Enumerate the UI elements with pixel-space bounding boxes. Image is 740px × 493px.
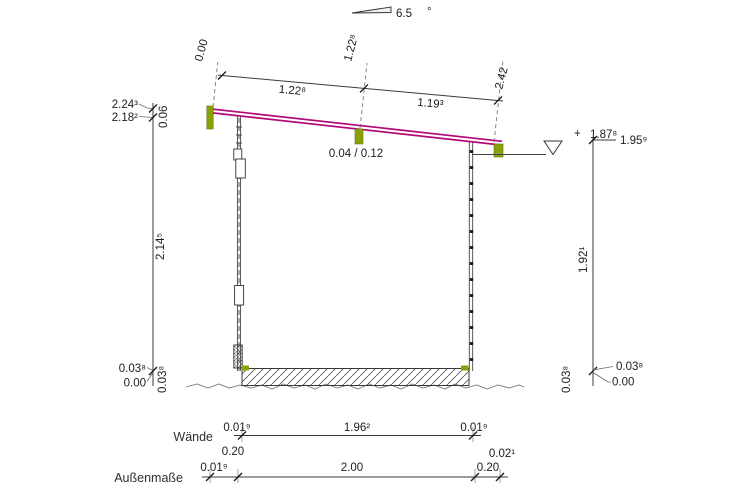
floor-slab bbox=[242, 369, 469, 386]
left-ground-level: 0.00 bbox=[124, 378, 146, 390]
left-wall bbox=[234, 117, 249, 372]
slope-wedge-icon bbox=[352, 7, 391, 13]
right-wall bbox=[461, 142, 473, 372]
door-handle-detail bbox=[236, 159, 246, 178]
right-sill-wood bbox=[461, 366, 469, 371]
right-wall-height: 1.92¹ bbox=[578, 247, 590, 273]
wall-connector-detail bbox=[235, 286, 244, 306]
outer-right: 0.20 bbox=[477, 462, 499, 474]
outer-left: 0.01⁹ bbox=[200, 462, 227, 474]
walls-dimension-row: Wände 0.01⁹ 1.96² 0.01⁹ 0.20 0.02¹ bbox=[173, 422, 515, 460]
left-dimensions: 2.24³ 2.18² 0.06 2.14⁵ 0.03⁸ 0.00 0.03⁸ bbox=[112, 99, 170, 393]
outer-row-label: Außenmaße bbox=[114, 471, 183, 485]
walls-row-label: Wände bbox=[173, 430, 213, 444]
right-dimensions: 1.95⁹ 1.92¹ 0.03⁸ 0.03⁸ 0.00 bbox=[561, 135, 647, 393]
roof-dim-origin: 0.00 bbox=[193, 38, 210, 63]
left-plinth-top: 0.03⁸ bbox=[119, 363, 146, 375]
building: 0.04 / 0.12 + 1.87⁸ bbox=[186, 106, 617, 389]
right-ground-level: 0.00 bbox=[612, 377, 634, 389]
door-latch-detail bbox=[234, 149, 242, 160]
left-plinth-height: 0.03⁸ bbox=[157, 366, 169, 393]
level-triangle-icon bbox=[544, 141, 562, 155]
right-plinth-top: 0.03⁸ bbox=[616, 361, 643, 373]
right-plinth-height: 0.03⁸ bbox=[561, 366, 573, 393]
left-base-plate bbox=[234, 345, 242, 368]
section-drawing: 6.5 ° 0.00 1.22⁸ 2.42 1.22⁸ 1.19³ bbox=[0, 0, 740, 493]
bottom-dimensions: Wände 0.01⁹ 1.96² 0.01⁹ 0.20 0.02¹ Außen… bbox=[114, 422, 515, 485]
outer-total: 2.00 bbox=[341, 462, 363, 474]
left-wall-height: 2.14⁵ bbox=[155, 233, 167, 260]
walls-right-extra: 0.02¹ bbox=[489, 448, 515, 460]
right-top-height: 1.95⁹ bbox=[620, 135, 647, 147]
level-sign: + bbox=[574, 128, 581, 140]
left-fascia-wood bbox=[207, 106, 213, 129]
left-top-outer: 2.24³ bbox=[112, 99, 138, 111]
walls-right-thickness: 0.01⁹ bbox=[460, 422, 487, 434]
left-sill-wood bbox=[242, 366, 250, 371]
mid-purlin-wood bbox=[355, 129, 363, 144]
left-top-inner: 2.18² bbox=[112, 112, 138, 124]
slope-indicator: 6.5 ° bbox=[352, 6, 432, 20]
roof-dim-mid: 1.22⁸ bbox=[342, 33, 361, 63]
roof-dim-end: 2.42 bbox=[493, 66, 510, 91]
walls-left-extra: 0.20 bbox=[222, 446, 244, 458]
outer-dimension-row: Außenmaße 0.01⁹ 2.00 0.20 bbox=[114, 462, 508, 485]
slope-value: 6.5 bbox=[396, 8, 412, 20]
left-fascia-height: 0.06 bbox=[158, 106, 170, 128]
walls-left-thickness: 0.01⁹ bbox=[223, 422, 250, 434]
roof-seg-left: 1.22⁸ bbox=[278, 84, 306, 98]
slope-unit: ° bbox=[427, 6, 432, 18]
walls-clear-width: 1.96² bbox=[344, 422, 370, 434]
roof-seg-right: 1.19³ bbox=[417, 97, 444, 111]
right-fascia-wood bbox=[494, 144, 503, 157]
purlin-size-label: 0.04 / 0.12 bbox=[329, 148, 383, 160]
